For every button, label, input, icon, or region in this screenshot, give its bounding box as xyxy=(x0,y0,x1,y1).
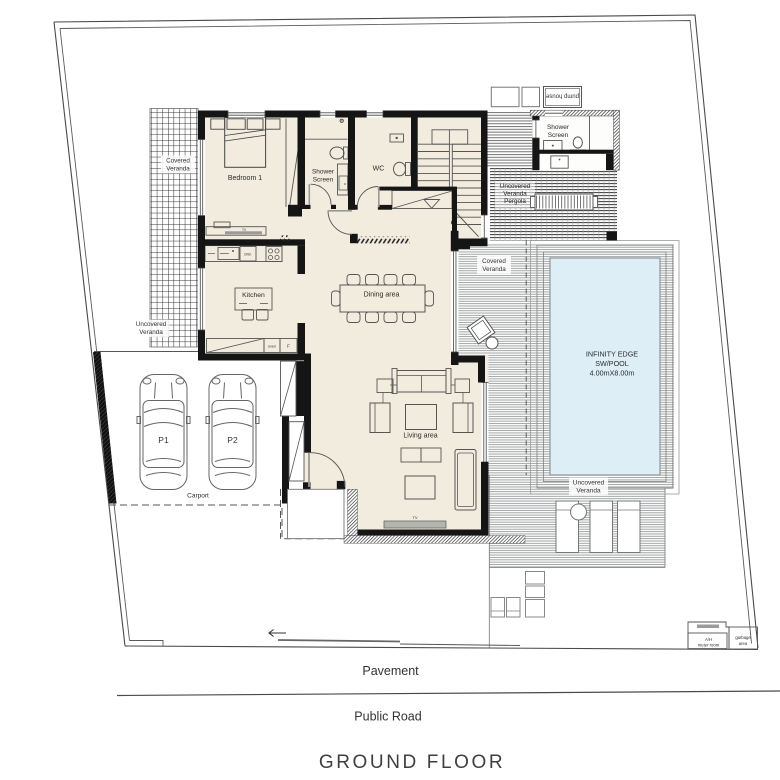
svg-text:Screen: Screen xyxy=(548,132,569,139)
svg-text:Public Road: Public Road xyxy=(354,710,421,724)
svg-text:Pavement: Pavement xyxy=(362,664,419,678)
svg-text:Bedroom 1: Bedroom 1 xyxy=(228,175,262,182)
svg-text:Veranda: Veranda xyxy=(139,329,163,336)
svg-text:INFINITY EDGE: INFINITY EDGE xyxy=(586,350,638,359)
svg-text:Carport: Carport xyxy=(187,493,209,500)
svg-text:Uncovered: Uncovered xyxy=(136,321,167,328)
svg-text:Veranda: Veranda xyxy=(166,166,190,173)
svg-text:Shower: Shower xyxy=(312,169,335,176)
svg-text:F: F xyxy=(287,344,290,349)
svg-text:Covered: Covered xyxy=(166,158,190,165)
svg-text:oven: oven xyxy=(268,345,276,349)
svg-text:pump house: pump house xyxy=(545,93,579,99)
svg-text:A/H: A/H xyxy=(705,637,712,642)
svg-text:Living area: Living area xyxy=(403,433,437,440)
svg-text:Covered: Covered xyxy=(482,258,506,265)
svg-text:Kitchen: Kitchen xyxy=(242,292,265,299)
svg-text:Screen: Screen xyxy=(313,177,334,184)
svg-text:Pergola: Pergola xyxy=(504,198,526,205)
svg-text:garbage: garbage xyxy=(735,635,751,640)
svg-text:GROUND FLOOR: GROUND FLOOR xyxy=(319,752,505,773)
svg-text:area: area xyxy=(739,641,748,646)
svg-text:4.00mX8.00m: 4.00mX8.00m xyxy=(590,369,635,378)
svg-text:TV: TV xyxy=(412,515,417,520)
svg-text:DW.: DW. xyxy=(244,253,251,257)
svg-text:Dining area: Dining area xyxy=(364,292,400,299)
svg-text:P2: P2 xyxy=(227,435,238,445)
svg-text:P1: P1 xyxy=(158,435,169,445)
svg-text:Uncovered: Uncovered xyxy=(500,183,531,190)
svg-text:SW/POOL: SW/POOL xyxy=(595,359,629,368)
svg-text:WC: WC xyxy=(373,166,385,173)
svg-text:Uncovered: Uncovered xyxy=(573,480,605,487)
svg-text:Veranda: Veranda xyxy=(576,488,601,495)
svg-text:Shower: Shower xyxy=(547,124,570,131)
svg-text:Veranda: Veranda xyxy=(503,191,527,198)
svg-text:meter room: meter room xyxy=(698,643,720,648)
svg-text:Veranda: Veranda xyxy=(482,266,506,273)
